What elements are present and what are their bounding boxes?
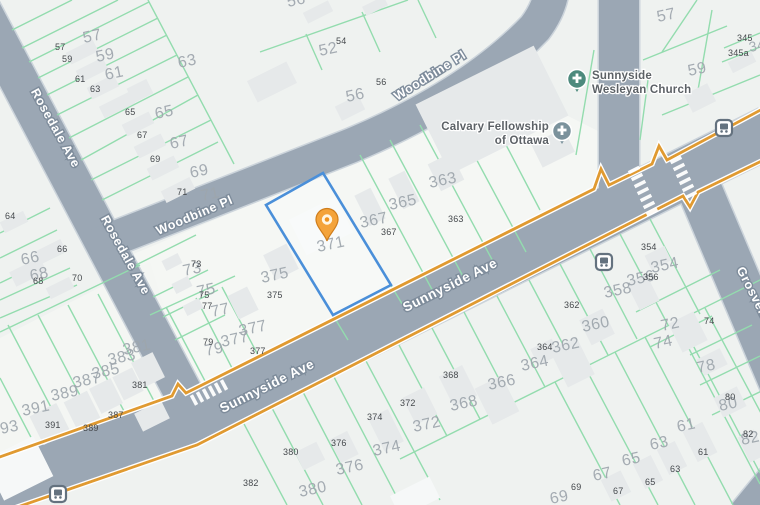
address-number: 362 (564, 300, 580, 310)
address-number: 374 (367, 412, 383, 422)
address-number: 54 (336, 36, 346, 46)
address-number: 71 (177, 187, 187, 197)
address-number: 387 (108, 410, 124, 420)
address-number: 65 (645, 477, 655, 487)
bus-stop-icon[interactable] (716, 120, 732, 136)
address-number: 80 (725, 392, 735, 402)
poi-label-line2: of Ottawa (495, 135, 550, 147)
address-number: 376 (331, 438, 347, 448)
address-number: 372 (400, 398, 416, 408)
address-number: 67 (613, 486, 623, 496)
address-number: 56 (376, 77, 386, 87)
address-number: 57 (55, 42, 65, 52)
address-number: 367 (381, 227, 397, 237)
address-number: 354 (641, 242, 657, 252)
address-number: 345 (737, 33, 753, 43)
address-number: 70 (72, 273, 82, 283)
address-number: 64 (5, 211, 15, 221)
address-number: 69 (571, 482, 581, 492)
address-number: 363 (448, 214, 464, 224)
address-number: 65 (125, 107, 135, 117)
address-number: 377 (250, 346, 266, 356)
address-number: 63 (90, 84, 100, 94)
address-number: 73 (191, 259, 201, 269)
address-number: 380 (283, 447, 299, 457)
address-number: 59 (62, 54, 72, 64)
bus-stop-icon[interactable] (596, 254, 612, 270)
address-number: 63 (670, 464, 680, 474)
address-number: 75 (199, 290, 209, 300)
poi-label-line1: Calvary Fellowship (441, 121, 549, 133)
address-number: 82 (743, 429, 753, 439)
address-number: 61 (698, 447, 708, 457)
address-number: 381 (132, 380, 148, 390)
address-number: 356 (643, 272, 659, 282)
address-number: 77 (202, 301, 212, 311)
poi-label-line2: Wesleyan Church (592, 84, 691, 96)
address-number: 375 (267, 290, 283, 300)
address-number: 61 (75, 74, 85, 84)
address-number: 391 (45, 420, 61, 430)
poi-label-line1: Sunnyside (592, 70, 652, 82)
address-number: 66 (57, 244, 67, 254)
address-number: 68 (33, 276, 43, 286)
bus-stop-icon[interactable] (50, 486, 66, 502)
address-number: 74 (704, 316, 714, 326)
parcel-number: 69 (548, 487, 570, 505)
address-number: 364 (537, 342, 553, 352)
address-number: 368 (443, 370, 459, 380)
address-number: 69 (150, 154, 160, 164)
address-number: 382 (243, 478, 259, 488)
parcel-map-svg[interactable]: 57 59 61 63 65 67 69 71 73 75 77 79 52 5… (0, 0, 760, 505)
map-canvas[interactable]: 57 59 61 63 65 67 69 71 73 75 77 79 52 5… (0, 0, 760, 505)
address-number: 67 (137, 130, 147, 140)
address-number: 389 (83, 423, 99, 433)
address-number: 79 (203, 337, 213, 347)
address-number: 345a (728, 48, 749, 58)
